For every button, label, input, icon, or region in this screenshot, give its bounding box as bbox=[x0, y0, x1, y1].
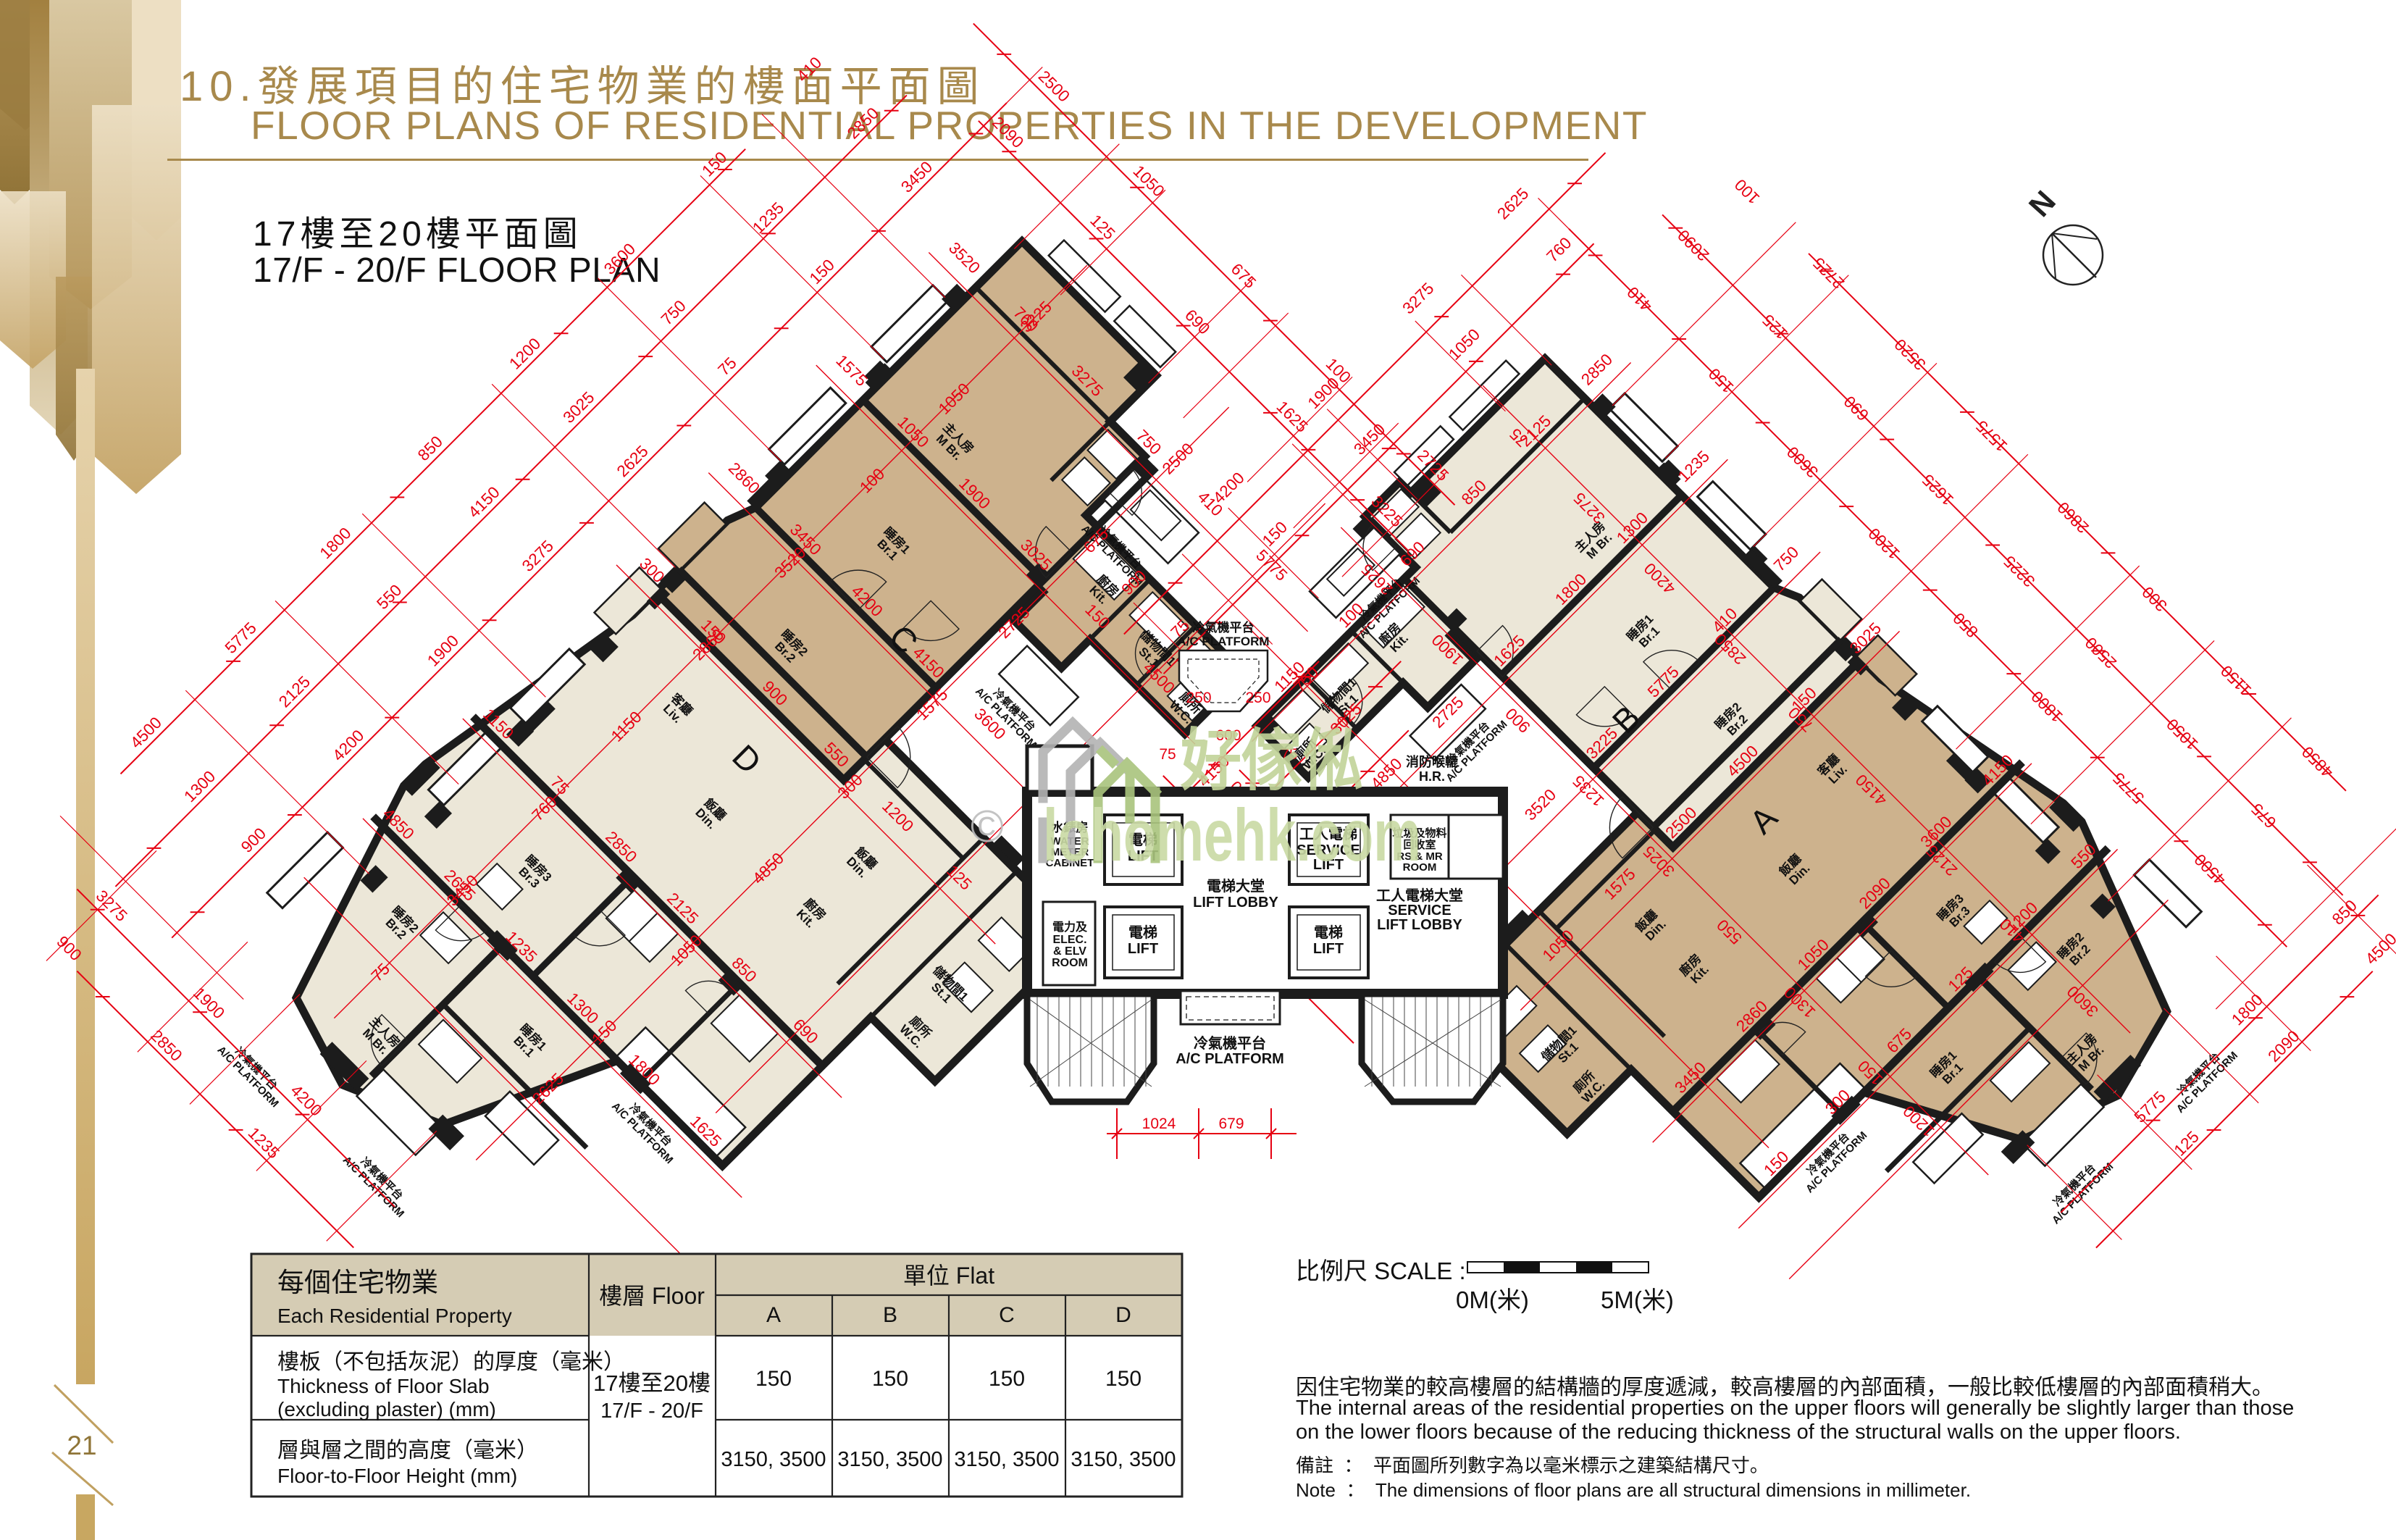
svg-text:150: 150 bbox=[755, 1367, 792, 1391]
svg-text:150: 150 bbox=[872, 1367, 908, 1391]
svg-text:Thickness of Floor Slab: Thickness of Floor Slab bbox=[277, 1375, 490, 1397]
svg-text:3150, 3500: 3150, 3500 bbox=[1071, 1448, 1176, 1471]
svg-text:樓層 Floor: 樓層 Floor bbox=[599, 1283, 705, 1309]
svg-text:(excluding plaster) (mm): (excluding plaster) (mm) bbox=[277, 1398, 496, 1420]
svg-text:層與層之間的高度（毫米）: 層與層之間的高度（毫米） bbox=[277, 1439, 538, 1462]
svg-text:A: A bbox=[766, 1303, 781, 1327]
svg-text:3150, 3500: 3150, 3500 bbox=[721, 1448, 826, 1471]
svg-text:3150, 3500: 3150, 3500 bbox=[837, 1448, 942, 1471]
svg-text:Each Residential Property: Each Residential Property bbox=[277, 1305, 512, 1327]
svg-text:B: B bbox=[883, 1303, 897, 1327]
svg-text:3150, 3500: 3150, 3500 bbox=[954, 1448, 1059, 1471]
svg-text:D: D bbox=[1115, 1303, 1131, 1327]
svg-text:Floor-to-Floor Height (mm): Floor-to-Floor Height (mm) bbox=[277, 1465, 517, 1487]
svg-text:單位 Flat: 單位 Flat bbox=[903, 1263, 994, 1289]
svg-text:17樓至20樓: 17樓至20樓 bbox=[593, 1370, 711, 1396]
svg-text:150: 150 bbox=[1105, 1367, 1142, 1391]
svg-text:150: 150 bbox=[989, 1367, 1025, 1391]
svg-text:每個住宅物業: 每個住宅物業 bbox=[277, 1268, 438, 1297]
svg-text:樓板（不包括灰泥）的厚度（毫米）: 樓板（不包括灰泥）的厚度（毫米） bbox=[277, 1350, 625, 1374]
svg-text:C: C bbox=[999, 1303, 1015, 1327]
svg-text:17/F - 20/F: 17/F - 20/F bbox=[600, 1399, 703, 1423]
